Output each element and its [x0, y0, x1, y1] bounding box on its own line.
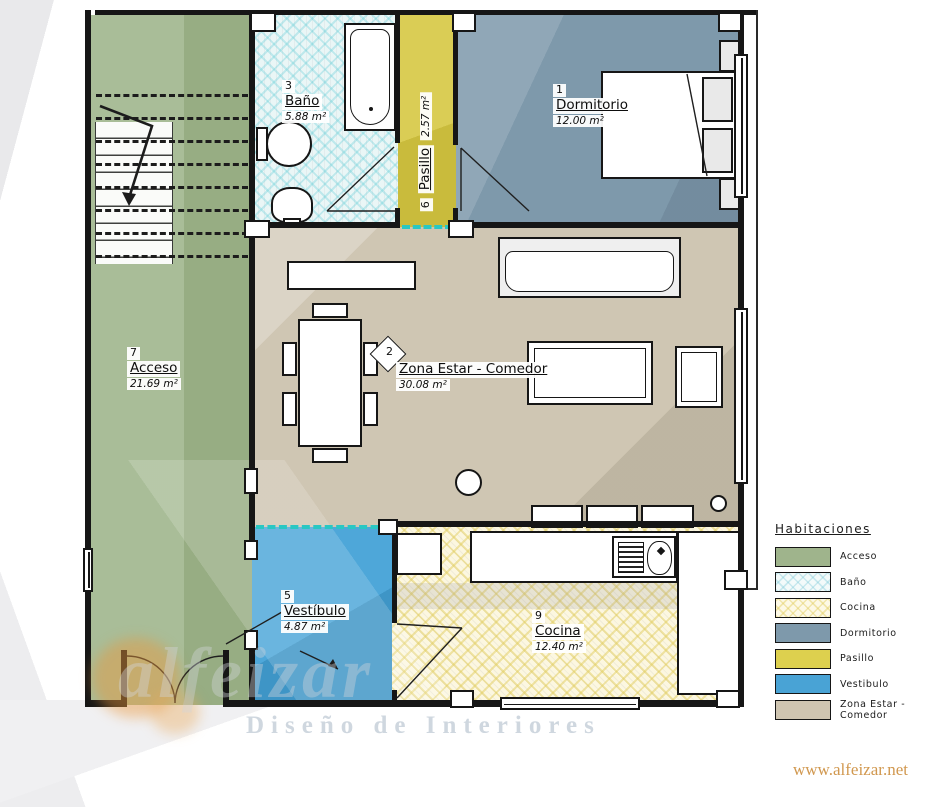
bano-area: 5.88 m²: [282, 111, 329, 123]
dining-chair: [282, 342, 297, 376]
zona-area: 30.08 m²: [396, 379, 450, 391]
legend-swatch-dormitorio: [775, 623, 831, 643]
bathtub-drain: [369, 107, 373, 111]
pillar: [724, 570, 748, 590]
vestibulo-number: 5: [281, 590, 294, 603]
window-living: [734, 308, 748, 484]
pillar: [244, 468, 258, 494]
stair-overhead-dash: [96, 117, 248, 120]
pillar: [250, 12, 276, 32]
kitchen-sink: [612, 536, 676, 578]
dormitorio-area: 12.00 m²: [553, 115, 607, 127]
legend-row: Dormitorio: [775, 623, 937, 644]
dormitorio-number: 1: [553, 84, 566, 97]
cocina-area: 12.40 m²: [532, 641, 586, 653]
wall-left: [85, 10, 91, 707]
legend-swatch-pasillo: [775, 649, 831, 669]
logo-blob-orange-small: [150, 690, 200, 734]
wall-outer-right: [756, 10, 758, 590]
wall-dormitorio-bottom: [456, 222, 742, 228]
bano-name: Baño: [282, 94, 322, 110]
wall-vestibulo-cocina: [392, 527, 397, 623]
wall-bano-bottom: [252, 222, 398, 228]
pasillo-name: Pasillo: [418, 145, 434, 193]
legend-label-pasillo: Pasillo: [840, 653, 874, 664]
wall-acceso-vertical: [249, 15, 255, 545]
sofa: [498, 237, 681, 298]
dining-table: [298, 319, 362, 447]
legend-swatch-zona: [775, 700, 831, 720]
sofa-seat: [505, 251, 674, 292]
stair-overhead-dash: [96, 163, 248, 166]
window-glass-line: [741, 312, 743, 480]
acceso-label: 7 Acceso 21.69 m²: [127, 347, 181, 390]
pillar: [450, 690, 474, 708]
threshold-pasillo-living: [402, 225, 453, 229]
window-glass-line: [88, 552, 90, 588]
acceso-name: Acceso: [127, 361, 180, 377]
sink-basin: [647, 541, 672, 575]
pillar: [244, 540, 258, 560]
legend-row: Baño: [775, 572, 937, 593]
legend-row: Acceso: [775, 546, 937, 567]
vestibulo-name: Vestíbulo: [281, 604, 349, 620]
wall-pasillo-dormitorio: [453, 15, 458, 145]
zona-label: Zona Estar - Comedor 30.08 m²: [396, 362, 550, 391]
wall-living-bottom: [392, 521, 742, 527]
acceso-number: 7: [127, 347, 140, 360]
cocina-label: 9 Cocina 12.40 m²: [532, 610, 586, 653]
dormitorio-label: 1 Dormitorio 12.00 m²: [553, 84, 631, 127]
legend-row: Zona Estar - Comedor: [775, 699, 937, 720]
side-table-top: [681, 352, 717, 402]
corner-shadow-top-left: [0, 0, 88, 300]
legend-title: Habitaciones: [775, 522, 937, 536]
entrance-jamb-right: [223, 650, 229, 707]
stair-overhead-dash: [96, 94, 248, 97]
threshold-vestibulo-living: [256, 525, 390, 529]
acceso-area: 21.69 m²: [127, 378, 181, 390]
cocina-name: Cocina: [532, 624, 584, 640]
legend-label-dormitorio: Dormitorio: [840, 628, 897, 639]
pillar: [378, 519, 398, 535]
legend: Habitaciones Acceso Baño Cocina Dormitor…: [775, 522, 937, 725]
zona-name: Zona Estar - Comedor: [396, 362, 550, 378]
legend-row: Cocina: [775, 597, 937, 618]
kitchen-counter-right: [677, 531, 740, 695]
sink-drainboard: [618, 542, 644, 573]
dining-chair: [363, 392, 378, 426]
pillar: [452, 12, 476, 32]
sideboard: [287, 261, 416, 290]
legend-row: Vestibulo: [775, 674, 937, 695]
stool: [455, 469, 482, 496]
wall-top: [95, 10, 757, 15]
staircase: [95, 122, 173, 264]
stair-overhead-dash: [96, 232, 248, 235]
legend-swatch-bano: [775, 572, 831, 592]
vestibulo-area: 4.87 m²: [281, 621, 328, 633]
legend-label-acceso: Acceso: [840, 551, 877, 562]
floor-plan-canvas: alfeizar Diseño de Interiores 3 Baño 5.8…: [0, 0, 939, 807]
window-cocina: [500, 697, 640, 710]
stair-overhead-dash: [96, 255, 248, 258]
pillar: [244, 630, 258, 650]
wall-bano-pasillo: [395, 15, 400, 143]
legend-row: Pasillo: [775, 648, 937, 669]
bathtub: [344, 23, 396, 131]
stair-overhead-dash: [96, 186, 248, 189]
bano-number: 3: [282, 80, 295, 93]
window-left-wall: [83, 548, 93, 592]
legend-label-bano: Baño: [840, 577, 867, 588]
wall-bottom-2: [223, 700, 403, 707]
kitchen-counter-shadow: [396, 583, 692, 609]
website-url: www.alfeizar.net: [793, 760, 908, 780]
legend-label-zona: Zona Estar - Comedor: [840, 699, 937, 721]
stair-overhead-dash: [96, 140, 248, 143]
pillar: [448, 220, 474, 238]
legend-swatch-vestibulo: [775, 674, 831, 694]
pillar: [716, 690, 740, 708]
dining-chair: [312, 303, 348, 318]
window-glass-line: [504, 704, 636, 706]
legend-label-cocina: Cocina: [840, 602, 876, 613]
kitchen-appliance: [396, 533, 442, 575]
toilet-bowl: [266, 121, 312, 167]
legend-swatch-acceso: [775, 547, 831, 567]
vestibulo-label: 5 Vestíbulo 4.87 m²: [281, 590, 349, 633]
bano-label: 3 Baño 5.88 m²: [282, 80, 329, 123]
wall-acceso-vertical-lower: [249, 648, 255, 707]
dining-chair: [312, 448, 348, 463]
zona-number: 2: [383, 346, 396, 359]
cocina-number: 9: [532, 610, 545, 623]
wall-bano-pasillo-stub: [395, 208, 400, 228]
wall-fixture: [710, 495, 727, 512]
pillar: [718, 12, 742, 32]
pillow: [702, 77, 733, 122]
window-glass-line: [741, 58, 743, 194]
stair-overhead-dash: [96, 209, 248, 212]
legend-swatch-cocina: [775, 598, 831, 618]
dining-chair: [282, 392, 297, 426]
legend-label-vestibulo: Vestibulo: [840, 679, 889, 690]
pasillo-label: 6 Pasillo 2.57 m²: [418, 93, 434, 212]
side-table: [675, 346, 723, 408]
watermark-tagline: Diseño de Interiores: [246, 712, 601, 740]
pasillo-area: 2.57 m²: [420, 93, 432, 140]
coffee-table-top: [534, 348, 646, 398]
window-dormitorio: [734, 54, 748, 198]
dormitorio-name: Dormitorio: [553, 98, 631, 114]
pillar: [244, 220, 270, 238]
corner-shadow-bottom-left: [0, 545, 95, 807]
pillow: [702, 128, 733, 173]
pasillo-number: 6: [420, 198, 433, 211]
